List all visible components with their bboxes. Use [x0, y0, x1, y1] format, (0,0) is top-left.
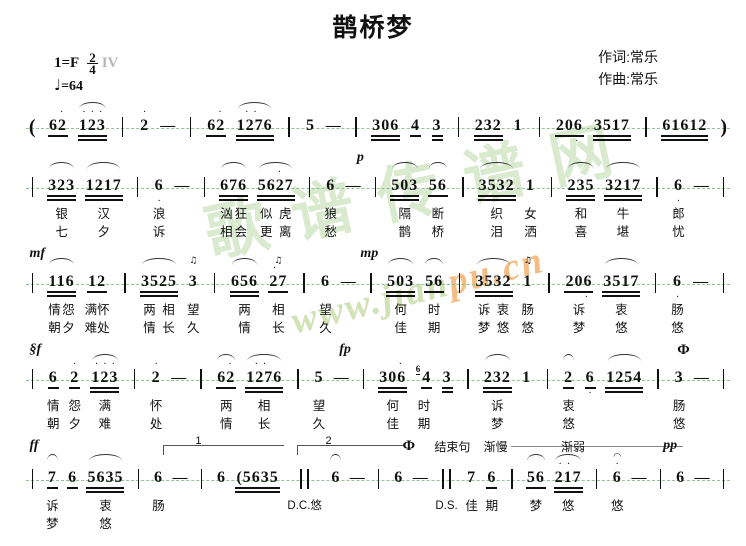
octave-dots-above	[119, 265, 132, 273]
barline	[26, 454, 39, 533]
lyric-verse1: 肠	[152, 497, 165, 515]
lyric-verse2	[198, 223, 211, 241]
octave-dots-below	[52, 139, 65, 145]
barline	[717, 162, 730, 241]
lyric-verse2	[215, 515, 228, 533]
note-group: 64 时期	[416, 354, 433, 433]
lyric-verse2	[341, 319, 356, 337]
note-digits: 206	[564, 273, 593, 293]
lyric-verse1: 望	[313, 397, 326, 415]
double-barline: D.C.悠	[287, 454, 322, 533]
octave-dots-above	[694, 265, 707, 273]
note-group: 3517 · ·衷悠	[602, 258, 640, 337]
octave-dots-above	[457, 169, 470, 177]
lyric-verse1	[694, 397, 709, 415]
lyric-char: 怀	[97, 301, 110, 319]
note-digits: 5	[313, 369, 324, 387]
lyric-verse2	[346, 223, 361, 241]
note-group: 323 银七	[47, 162, 76, 241]
volta-number: 2	[325, 435, 331, 447]
lyric-verse1: 诉	[46, 497, 59, 515]
octave-dots-above	[55, 265, 68, 273]
lyric-verse1	[171, 397, 186, 415]
barline	[458, 117, 460, 137]
lyric-verse2	[717, 415, 730, 433]
lyric-verse1: 肠	[522, 301, 535, 319]
duration-dash: —	[632, 454, 647, 533]
barline	[201, 469, 203, 489]
lyric-verse2	[545, 223, 558, 241]
note-digits: 62	[206, 117, 226, 137]
note-group: (5635	[235, 454, 279, 533]
note-group: ·2 怨夕	[68, 354, 81, 433]
octave-dots-above	[440, 461, 453, 469]
barline	[204, 177, 206, 197]
parenthesis: (	[26, 102, 39, 145]
note-group: 5	[304, 102, 317, 145]
lyric-text: 牛	[617, 205, 630, 223]
note-group: 232 诉梦	[483, 354, 512, 433]
lyric-text: 怨	[68, 397, 81, 415]
lyric-text: 肠	[152, 497, 165, 515]
note-group: 7 佳	[465, 454, 478, 533]
note-digits: 5	[305, 117, 316, 135]
barline	[717, 454, 730, 533]
barline	[131, 162, 144, 241]
lyric-verse2: 梦悠	[475, 319, 513, 337]
duration-dash: —	[413, 469, 428, 487]
lyric-verse2	[303, 223, 316, 241]
lyric-verse1	[195, 497, 208, 515]
octave-dots-above	[369, 169, 382, 177]
note-digits: 1	[513, 117, 524, 135]
barline	[122, 117, 124, 137]
note-group: 7 诉梦	[46, 454, 59, 533]
lyric-text: 堪	[617, 223, 630, 241]
page-title: 鹊桥梦	[0, 8, 746, 44]
octave-dots-above	[617, 169, 630, 177]
lyric-verse2: 朝夕	[47, 319, 75, 337]
lyric-text: D.C.悠	[287, 497, 322, 515]
lyric-verse2: 佳	[386, 319, 415, 337]
lyric-verse2	[441, 415, 454, 433]
lyric-char: 诉	[478, 301, 491, 319]
lyric-verse2: 佳	[378, 415, 407, 433]
octave-dots-below: ·	[555, 139, 583, 145]
note-digits: 206	[555, 117, 584, 137]
lyric-text: 久	[313, 415, 326, 433]
note-group: 6 肠	[152, 454, 165, 533]
barline	[288, 117, 290, 137]
barline	[453, 258, 466, 337]
lyric-text: 悠	[562, 497, 575, 515]
lyric-verse1: 衷	[562, 397, 575, 415]
note-group: 676 汹狂相会	[219, 162, 248, 241]
lyric-verse1	[26, 301, 39, 319]
lyric-text: 诉	[573, 301, 586, 319]
octave-dots-above	[351, 461, 364, 469]
lyric-verse2	[372, 515, 385, 533]
lyric-verse2: 悠	[522, 319, 535, 337]
note-digits: 6	[675, 469, 686, 487]
duration-dash: —	[171, 369, 186, 387]
barline	[124, 273, 126, 293]
note-group: ·62	[48, 102, 69, 145]
lyric-verse2	[330, 515, 343, 533]
lyric-verse1	[674, 497, 687, 515]
lyric-verse1	[717, 497, 730, 515]
duration-dash: —	[160, 102, 175, 145]
octave-dots-above	[590, 461, 603, 469]
lyric-verse2	[287, 515, 322, 533]
lyric-text: 诉	[46, 497, 59, 515]
octave-dots-above	[324, 169, 337, 177]
octave-dots-above	[453, 265, 466, 273]
note-group: ◠·6 悠	[611, 454, 624, 533]
lyric-verse1	[545, 205, 558, 223]
lyric-verse2	[365, 319, 378, 337]
octave-dots-below	[350, 139, 363, 145]
octave-dots-below	[304, 139, 317, 145]
barline	[350, 102, 363, 145]
lyric-verse1: 织	[478, 205, 516, 223]
note-group: 206 ·	[555, 102, 584, 145]
octave-dots-above	[347, 169, 360, 177]
barline	[462, 354, 475, 433]
lyric-text: 两	[220, 397, 233, 415]
barline	[547, 369, 549, 389]
note-group: 2 衷悠	[562, 354, 575, 433]
lyric-verse2	[457, 223, 470, 241]
barline	[723, 177, 725, 197]
lyric-verse2	[195, 515, 208, 533]
lyric-verse1	[341, 301, 356, 319]
lyric-verse2: 长	[245, 415, 283, 433]
lyric-text: 喜	[575, 223, 588, 241]
barline	[655, 273, 657, 293]
note-digits: 6	[393, 469, 404, 487]
lyric-verse2	[174, 223, 189, 241]
lyric-char: 梦	[478, 319, 491, 337]
lyric-verse2	[334, 415, 349, 433]
lyric-text: 浪	[153, 205, 166, 223]
lyric-verse2: 七	[47, 223, 76, 241]
music-system-3: mfmp 116 情怨朝夕 12 满怀难处 3525 两相情长♫ 3 望久 65…	[26, 245, 730, 337]
lyric-verse1	[195, 397, 208, 415]
lyric-verse1: 怀	[149, 397, 162, 415]
lyric-verse1	[172, 497, 187, 515]
lyric-verse1: 怨	[68, 397, 81, 415]
note-group: ·· 217 悠	[554, 454, 583, 533]
octave-dots-above	[428, 265, 441, 273]
octave-dots-above	[91, 265, 104, 273]
note-group: 1	[512, 102, 525, 145]
lyric-verse2: 久	[187, 319, 200, 337]
lyric-text: 桥	[432, 223, 445, 241]
octave-dots-below	[640, 139, 653, 145]
note-digits: 4	[421, 369, 432, 389]
lyric-verse1: 汉	[85, 205, 123, 223]
note-digits: 6	[585, 369, 596, 389]
lyric-text: 衷	[562, 397, 575, 415]
lyric-text: 郎	[672, 205, 685, 223]
lyric-verse1	[693, 301, 708, 319]
note-group: 1	[520, 354, 533, 433]
barline	[190, 117, 192, 137]
lyric-verse1: 满怀	[85, 301, 110, 319]
lyric-verse2: 悠	[673, 415, 686, 433]
octave-dots-above	[618, 361, 631, 369]
lyric-text: 忧	[672, 223, 685, 241]
octave-dots-below: ·	[594, 139, 630, 145]
lyric-verse1: 银	[47, 205, 76, 223]
lyric-verse2	[132, 515, 145, 533]
barline	[457, 162, 470, 241]
lyric-verse2	[611, 515, 624, 533]
dynamic-marking: mf	[30, 246, 46, 262]
lyric-text: 和	[575, 205, 588, 223]
octave-dots-above	[543, 265, 556, 273]
lyric-verse1: 何	[386, 301, 415, 319]
note-group: 6	[66, 454, 79, 533]
octave-dots-above	[465, 461, 478, 469]
octave-dots-above	[365, 265, 378, 273]
octave-dots-above	[462, 361, 475, 369]
lyric-verse2: 相会	[219, 223, 248, 241]
barline	[640, 102, 653, 145]
note-group: 232	[474, 102, 503, 145]
octave-dots-above	[487, 265, 500, 273]
octave-dots-above	[184, 109, 197, 117]
barline	[32, 469, 34, 489]
music-system-1: ( ·62 ···123 ·2 — ·62 ·· 1276 5 — 306 4 …	[26, 100, 730, 145]
note-group: 656 两情	[230, 258, 259, 337]
lyric-text: 何	[394, 301, 407, 319]
lyric-verse1	[208, 301, 221, 319]
duration-dash: —	[693, 258, 708, 337]
lyric-char: 情	[143, 319, 156, 337]
note-digits: 27	[268, 273, 288, 293]
octave-dots-above	[198, 169, 211, 177]
lyric-text: 肠	[522, 301, 535, 319]
octave-dots-above	[298, 265, 311, 273]
note-group: 6 望久	[319, 258, 332, 337]
notes-row: 323 银七 1217 ·汉夕 6·浪诉 — 676 汹狂相会 · 5627 似…	[26, 162, 730, 241]
barline	[723, 273, 725, 293]
lyric-char: 处	[97, 319, 110, 337]
lyric-verse1	[26, 397, 39, 415]
lyric-text: 时	[428, 301, 441, 319]
note-group: 3517 ·	[593, 102, 631, 145]
barline	[195, 454, 208, 533]
duration-dash: —	[694, 369, 709, 387]
octave-dots-below	[86, 139, 99, 145]
octave-dots-above	[55, 169, 68, 177]
octave-dots-above	[533, 109, 546, 117]
duration-dash: —	[694, 162, 709, 241]
octave-dots-above	[654, 461, 667, 469]
note-group: · 5627 似虎更离	[257, 162, 295, 241]
octave-dots-below	[512, 139, 525, 145]
lyric-verse1	[520, 397, 533, 415]
octave-dots-above	[696, 461, 709, 469]
octave-dots-above	[173, 361, 186, 369]
lyric-verse1	[334, 397, 349, 415]
lyric-verse1	[292, 397, 305, 415]
octave-dots-above	[153, 169, 166, 177]
lyric-verse1	[695, 497, 710, 515]
barline	[372, 454, 385, 533]
lyric-verse1	[346, 205, 361, 223]
barline	[467, 369, 469, 389]
lyric-text: 悠	[615, 319, 628, 337]
lyric-text: 佳	[387, 415, 400, 433]
lyric-verse2: 久	[319, 319, 332, 337]
note-group: 3	[441, 354, 454, 433]
barline	[309, 177, 311, 197]
barline	[208, 258, 221, 337]
lyric-text: 何	[387, 397, 400, 415]
lyric-text: 期	[428, 319, 441, 337]
octave-dots-above	[174, 461, 187, 469]
octave-dots-above	[409, 109, 422, 117]
lyric-verse1: D.C.悠	[287, 497, 322, 515]
lyric-verse2: 情	[216, 415, 237, 433]
lyric-verse2	[541, 415, 554, 433]
lyric-verse2	[694, 415, 709, 433]
lyric-text: 怀	[150, 397, 163, 415]
scan-artifact: IV	[102, 55, 119, 72]
octave-dots-above: ··	[240, 109, 269, 117]
lyric-verse1	[543, 301, 556, 319]
lyric-text: 鹊	[399, 223, 412, 241]
note-digits: 6	[672, 273, 683, 291]
octave-dots-above	[46, 461, 59, 469]
duration-dash: —	[334, 369, 349, 387]
note-digits: 4	[410, 117, 421, 137]
note-digits: 6	[612, 469, 623, 487]
lyric-verse2: 期	[416, 415, 433, 433]
lyric-verse1	[330, 497, 343, 515]
duration-dash: —	[171, 354, 186, 433]
lyric-verse1: D.S.	[435, 497, 457, 515]
lyric-verse2: 朝	[47, 415, 60, 433]
octave-dots-above: ·	[48, 109, 69, 117]
notes-row: 7 诉梦 6 5635 衷悠 6 肠 — 6 (5635 D.C.悠 6 — 6…	[26, 454, 730, 533]
note-group: ·306 何佳	[378, 354, 407, 433]
tempo-value: =64	[61, 79, 83, 94]
barline	[717, 354, 730, 433]
note-group: 61612· ·	[661, 102, 708, 145]
octave-dots-above	[490, 169, 503, 177]
lyric-text: 望	[313, 397, 326, 415]
lyric-verse1	[541, 397, 554, 415]
note-group: 3217 ·牛堪	[604, 162, 642, 241]
octave-dots-above	[432, 169, 445, 177]
duration-dash: —	[350, 469, 365, 487]
barline	[369, 162, 382, 241]
lyric-verse2	[26, 415, 39, 433]
note-group: 3	[431, 102, 444, 145]
note-digits: 2	[139, 117, 150, 135]
lyric-verse2: 悠	[86, 515, 124, 533]
lyric-verse1	[441, 397, 454, 415]
duration-dash: —	[326, 102, 341, 145]
barline	[651, 162, 664, 241]
lyric-text: 情	[238, 319, 251, 337]
parenthesis: )	[720, 117, 727, 137]
barline	[200, 369, 202, 389]
barline	[645, 117, 647, 137]
lyric-verse2: 悠	[671, 319, 684, 337]
note-group: 6	[393, 454, 406, 533]
lyric-text: 望	[187, 301, 200, 319]
lyric-text: 洒	[524, 223, 537, 241]
lyric-verse2	[605, 415, 643, 433]
lyric-verse1: 断	[428, 205, 448, 223]
lyric-verse1: 期	[486, 497, 499, 515]
lyric-verse2	[393, 515, 406, 533]
score-systems: ( ·62 ···123 ·2 — ·62 ·· 1276 5 — 306 4 …	[26, 100, 730, 535]
octave-dots-above	[695, 361, 708, 369]
coda-icon: Φ	[403, 438, 415, 455]
barline	[138, 469, 140, 489]
note-group: 5 望久	[313, 354, 326, 433]
lyric-text: 佳	[465, 497, 478, 515]
lyric-verse2	[674, 515, 687, 533]
lyric-verse2	[632, 515, 647, 533]
lyric-verse2	[119, 319, 132, 337]
lyric-char: 似	[260, 205, 273, 223]
lyric-verse1	[131, 205, 144, 223]
octave-dots-above	[26, 265, 39, 273]
lyric-text: D.S.	[435, 497, 457, 515]
barline	[590, 454, 603, 533]
barline	[660, 469, 662, 489]
barline	[32, 369, 34, 389]
note-group: 56 时期	[424, 258, 444, 337]
lyric-verse2	[128, 415, 141, 433]
lyric-char: 衷	[497, 301, 510, 319]
octave-dots-above	[26, 461, 39, 469]
lyric-verse1: 相	[268, 301, 289, 319]
barline	[541, 354, 554, 433]
note-group: 503 何佳	[386, 258, 415, 337]
duration-dash: —	[174, 177, 189, 195]
octave-dots-above: ·	[206, 109, 227, 117]
duration-dash: —	[334, 354, 349, 433]
barline	[363, 369, 365, 389]
lyric-verse1: 诉	[483, 397, 512, 415]
lyric-verse2	[66, 515, 79, 533]
lyric-verse2	[208, 319, 221, 337]
octave-dots-above	[452, 109, 465, 117]
duration-dash: —	[174, 162, 189, 241]
octave-dots-above	[431, 109, 444, 117]
duration-dash: —	[346, 177, 361, 195]
lyric-verse2: 忧	[672, 223, 685, 241]
octave-dots-above: ···	[77, 109, 107, 117]
barline	[365, 258, 378, 337]
lyric-verse2: 洒	[524, 223, 537, 241]
duration-dash: —	[695, 454, 710, 533]
lyric-verse1: 汹狂	[219, 205, 248, 223]
lyric-verse2	[152, 515, 165, 533]
barline	[26, 258, 39, 337]
lyric-verse1	[393, 497, 406, 515]
lyric-text: 梦	[573, 319, 586, 337]
lyric-verse1	[649, 301, 662, 319]
